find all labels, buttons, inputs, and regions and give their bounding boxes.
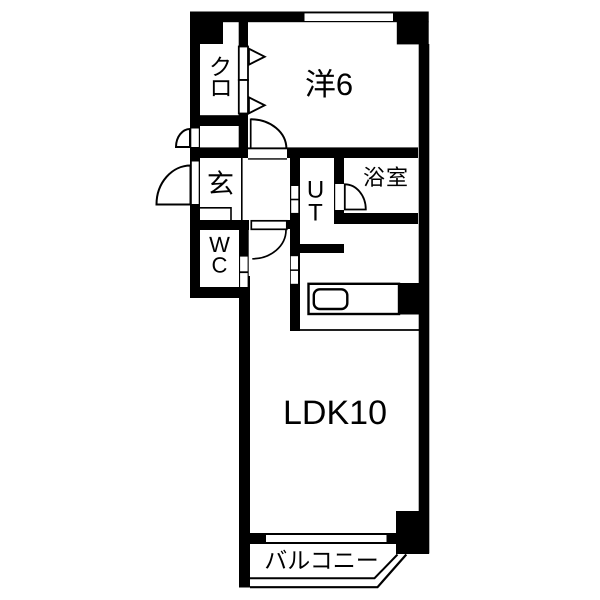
svg-text:浴室: 浴室 [363,165,409,190]
svg-text:LDK10: LDK10 [283,394,387,432]
svg-text:T: T [308,200,323,227]
svg-text:玄: 玄 [207,169,234,199]
svg-text:ロ: ロ [210,75,233,101]
svg-text:バルコニー: バルコニー [264,548,379,574]
svg-text:洋6: 洋6 [305,67,353,102]
svg-text:C: C [212,253,228,278]
